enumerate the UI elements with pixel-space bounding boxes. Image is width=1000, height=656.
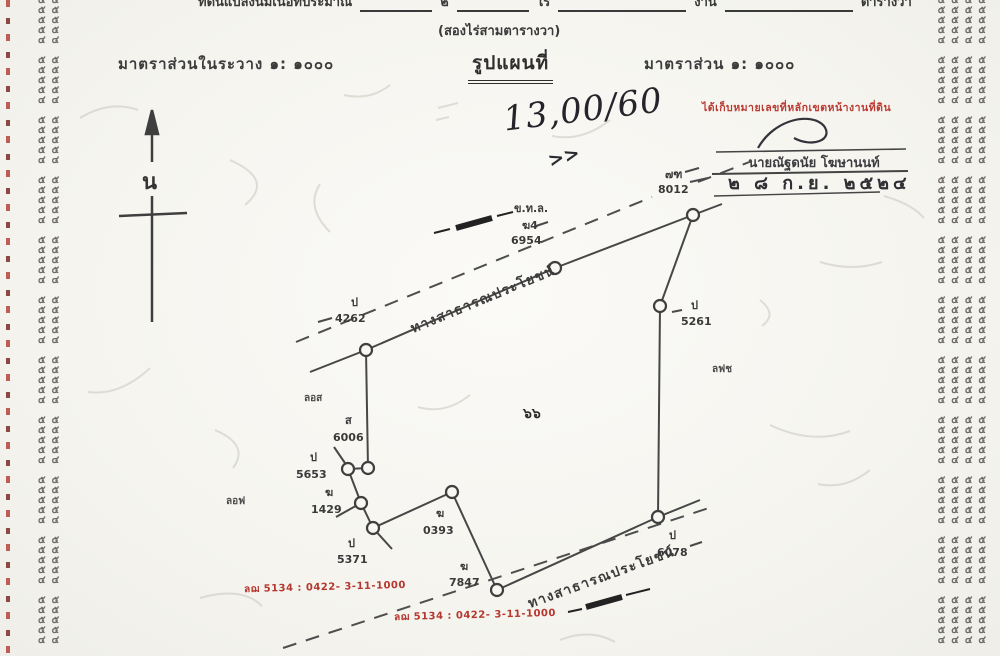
road-code-line3: 6954 — [511, 234, 542, 247]
marker-0393-prefix: ฆ — [436, 507, 444, 520]
compass-north-letter: น — [142, 170, 157, 195]
marker-7847-number: 7847 — [449, 576, 480, 589]
north-compass — [119, 110, 187, 322]
marker-label-6006: ส 6006 — [333, 414, 364, 444]
signature-flourish — [758, 119, 827, 148]
marker-4262-prefix: ป — [351, 296, 358, 309]
marker-5261-number: 5261 — [681, 315, 712, 328]
marker-5371-prefix: ป — [348, 537, 355, 550]
paper-smudges — [80, 85, 924, 642]
adjacent-parcel-label-2: ลอฟ — [226, 495, 245, 507]
marker-6078-number: 6078 — [657, 546, 688, 559]
marker-label-8012: ๗ฑ 8012 — [658, 168, 689, 196]
adjacent-parcel-label-1: ลอส — [304, 393, 323, 404]
marker-7847-prefix: ฆ — [460, 560, 468, 573]
stamp-rules — [712, 149, 908, 196]
survey-map-canvas: น — [0, 0, 1000, 656]
marker-label-1429: ฆ 1429 — [311, 486, 342, 516]
adjacent-parcel-label-3: ลฟช — [712, 363, 732, 375]
marker-5261-prefix: ป — [691, 299, 698, 312]
marker-1429-prefix: ฆ — [325, 486, 333, 499]
marker-4262-number: 4262 — [335, 312, 366, 325]
land-deed-map-page: ๕๕ ๕๕ ๕๕ ๕๕ ๔๔ ๕๕ ๕๕ ๕๕ ๕๕ ๔๔ ๕๕ ๕๕ ๕๕ ๕… — [0, 0, 1000, 656]
marker-6006-prefix: ส — [345, 414, 352, 427]
marker-label-0393: ฆ 0393 — [423, 507, 454, 537]
label-leader-dashes — [318, 168, 708, 546]
marker-0393-number: 0393 — [423, 524, 454, 537]
marker-label-6078: ป 6078 — [657, 529, 688, 559]
top-road-name: ทางสาธารณประโยชน์ — [408, 261, 558, 337]
marker-label-4262: ป 4262 — [335, 296, 366, 325]
marker-label-5371: ป 5371 — [337, 537, 368, 566]
marker-label-5261: ป 5261 — [681, 299, 712, 328]
parcel-number: ๖๖ — [522, 406, 541, 422]
road-code-line1: ข.ท.ล. — [514, 202, 548, 215]
marker-6006-number: 6006 — [333, 431, 364, 444]
road-code-line2: ฆ4 — [522, 219, 538, 232]
boundary-marker-circles — [342, 209, 699, 596]
marker-8012-number: 8012 — [658, 183, 689, 196]
marker-8012-prefix: ๗ฑ — [665, 168, 682, 181]
marker-label-7847: ฆ 7847 — [449, 560, 480, 589]
marker-5653-prefix: ป — [310, 451, 317, 464]
marker-5371-number: 5371 — [337, 553, 368, 566]
bottom-dashed-road-line — [283, 506, 715, 648]
marker-6078-prefix: ป — [669, 529, 676, 542]
marker-1429-number: 1429 — [311, 503, 342, 516]
marker-label-5653: ป 5653 — [296, 451, 327, 481]
marker-5653-number: 5653 — [296, 468, 327, 481]
